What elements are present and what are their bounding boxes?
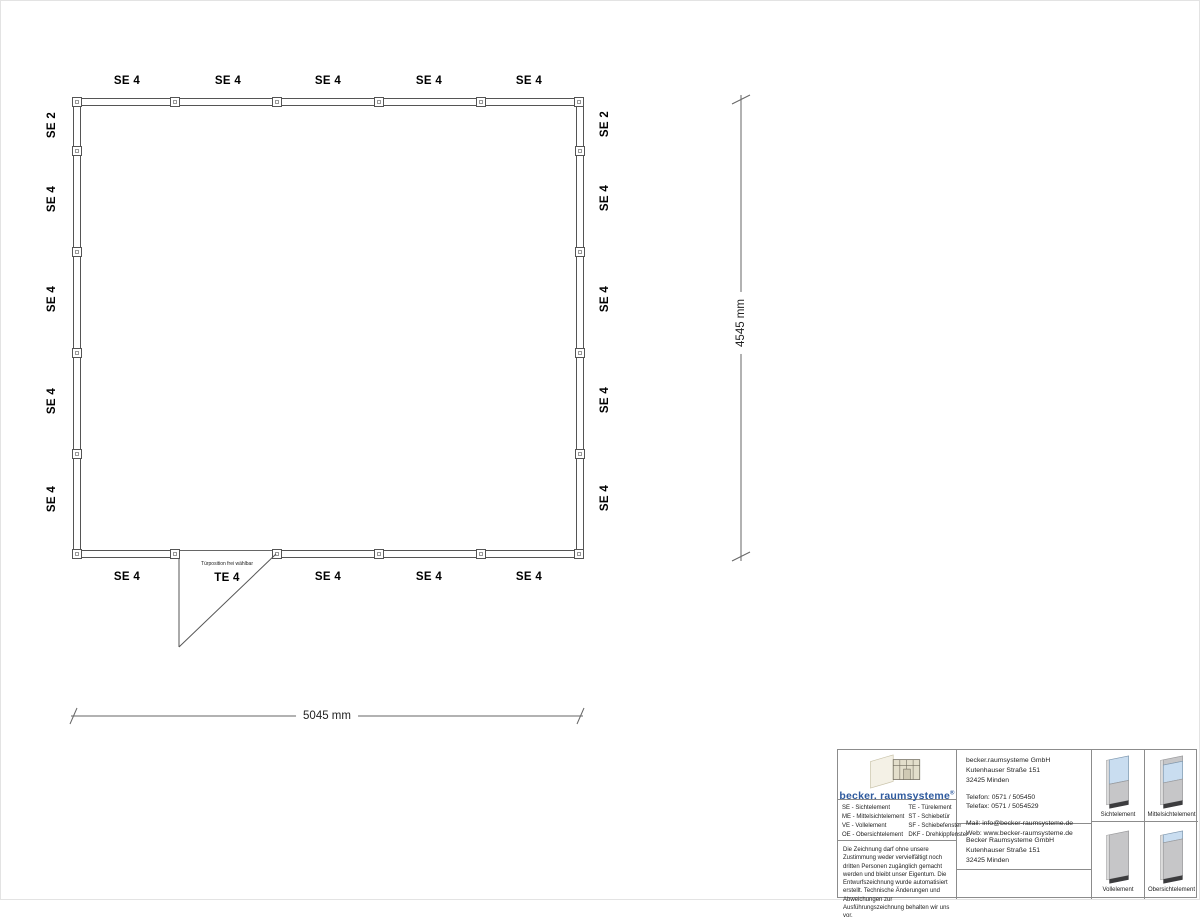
- wall-element-label: SE 4: [293, 571, 363, 583]
- owner-cell: Becker Raumsysteme GmbH Kutenhauser Stra…: [957, 824, 1092, 870]
- wall-element-label: SE 4: [46, 366, 58, 436]
- element-cell-sichtelement: Sichtelement: [1092, 750, 1145, 822]
- door-opening-line: [180, 550, 277, 551]
- wall-element-label: SE 4: [599, 264, 611, 334]
- wall-post: [374, 97, 384, 107]
- owner-city: 32425 Minden: [966, 856, 1091, 866]
- wall-post: [575, 449, 585, 459]
- legend-column-1: SE - Sichtelement ME - Mittelsichtelemen…: [842, 804, 904, 840]
- legend-item: OE - Obersichtelement: [842, 831, 904, 840]
- dim-tick: [70, 708, 77, 724]
- wall-post: [575, 247, 585, 257]
- registered-mark: ®: [950, 791, 955, 797]
- legend-item: VE - Vollelement: [842, 822, 904, 831]
- wall-left: [73, 98, 81, 558]
- wall-element-label: SE 4: [394, 75, 464, 87]
- door-position-note: Türposition frei wählbar: [172, 561, 282, 567]
- dim-tick: [732, 95, 750, 104]
- wall-post: [170, 97, 180, 107]
- wall-post: [72, 97, 82, 107]
- wall-bottom-right: [277, 550, 584, 558]
- contact-street: Kutenhauser Straße 151: [966, 766, 1091, 776]
- wall-element-label: SE 2: [599, 89, 611, 159]
- wall-top: [73, 98, 584, 106]
- wall-post: [374, 549, 384, 559]
- wall-element-label: SE 2: [46, 90, 58, 160]
- element-type-label: Mittelsichtelement: [1145, 812, 1198, 818]
- door-element-label: TE 4: [192, 572, 262, 584]
- wall-element-label: SE 4: [599, 163, 611, 233]
- disclaimer-text: Die Zeichnung darf ohne unsere Zustimmun…: [843, 846, 951, 920]
- obersichtelement-panel-icon: [1154, 828, 1190, 888]
- wall-post: [272, 97, 282, 107]
- mittelsichtelement-panel-icon: [1154, 753, 1190, 813]
- legend-cell: SE - Sichtelement ME - Mittelsichtelemen…: [838, 800, 957, 841]
- contact-city: 32425 Minden: [966, 776, 1091, 786]
- wall-post: [72, 348, 82, 358]
- dim-tick: [577, 708, 584, 724]
- vollelement-panel-icon: [1100, 828, 1136, 888]
- dim-tick: [732, 552, 750, 561]
- owner-company: Becker Raumsysteme GmbH: [966, 836, 1091, 846]
- wall-right: [576, 98, 584, 558]
- wall-element-label: SE 4: [599, 463, 611, 533]
- door-swing-line: [179, 554, 276, 647]
- contact-cell: becker.raumsysteme GmbH Kutenhauser Stra…: [957, 750, 1092, 824]
- wall-post: [72, 549, 82, 559]
- element-type-label: Sichtelement: [1092, 812, 1144, 818]
- wall-post: [574, 549, 584, 559]
- logo-graphic: [867, 753, 927, 789]
- wall-post: [574, 97, 584, 107]
- wall-element-label: SE 4: [46, 264, 58, 334]
- wall-element-label: SE 4: [193, 75, 263, 87]
- dim-width-label: 5045 mm: [296, 709, 358, 723]
- wall-element-label: SE 4: [293, 75, 363, 87]
- wall-element-label: SE 4: [46, 164, 58, 234]
- wall-post: [575, 348, 585, 358]
- wall-element-label: SE 4: [394, 571, 464, 583]
- wall-element-label: SE 4: [92, 75, 162, 87]
- wall-element-label: SE 4: [46, 464, 58, 534]
- element-cell-mittelsichtelement: Mittelsichtelement: [1145, 750, 1198, 822]
- drawing-sheet: 4545 mm 5045 mm SE 4 SE 4 SE 4 SE 4 SE 4…: [0, 0, 1200, 900]
- sichtelement-panel-icon: [1100, 753, 1136, 813]
- element-type-label: Vollelement: [1092, 887, 1144, 893]
- wall-element-label: SE 4: [599, 365, 611, 435]
- element-type-label: Obersichtelement: [1145, 887, 1198, 893]
- title-block: becker. raumsysteme® SE - Sichtelement M…: [837, 749, 1197, 898]
- dim-height-label: 4545 mm: [734, 292, 748, 354]
- wall-post: [272, 549, 282, 559]
- element-cell-vollelement: Vollelement: [1092, 822, 1145, 899]
- legend-item: SE - Sichtelement: [842, 804, 904, 813]
- wall-post: [72, 146, 82, 156]
- legend-item: ME - Mittelsichtelement: [842, 813, 904, 822]
- logo-cell: becker. raumsysteme®: [838, 750, 957, 800]
- wall-element-label: SE 4: [92, 571, 162, 583]
- owner-street: Kutenhauser Straße 151: [966, 846, 1091, 856]
- wall-post: [476, 549, 486, 559]
- wall-element-label: SE 4: [494, 571, 564, 583]
- wall-bottom-left: [73, 550, 180, 558]
- wall-post: [476, 97, 486, 107]
- contact-phone: Telefon: 0571 / 505450: [966, 793, 1091, 803]
- contact-company: becker.raumsysteme GmbH: [966, 756, 1091, 766]
- wall-post: [72, 247, 82, 257]
- empty-cell: [957, 870, 1092, 899]
- wall-post: [170, 549, 180, 559]
- contact-fax: Telefax: 0571 / 5054529: [966, 802, 1091, 812]
- element-cell-obersichtelement: Obersichtelement: [1145, 822, 1198, 899]
- wall-post: [575, 146, 585, 156]
- wall-post: [72, 449, 82, 459]
- disclaimer-cell: Die Zeichnung darf ohne unsere Zustimmun…: [838, 841, 957, 899]
- wall-element-label: SE 4: [494, 75, 564, 87]
